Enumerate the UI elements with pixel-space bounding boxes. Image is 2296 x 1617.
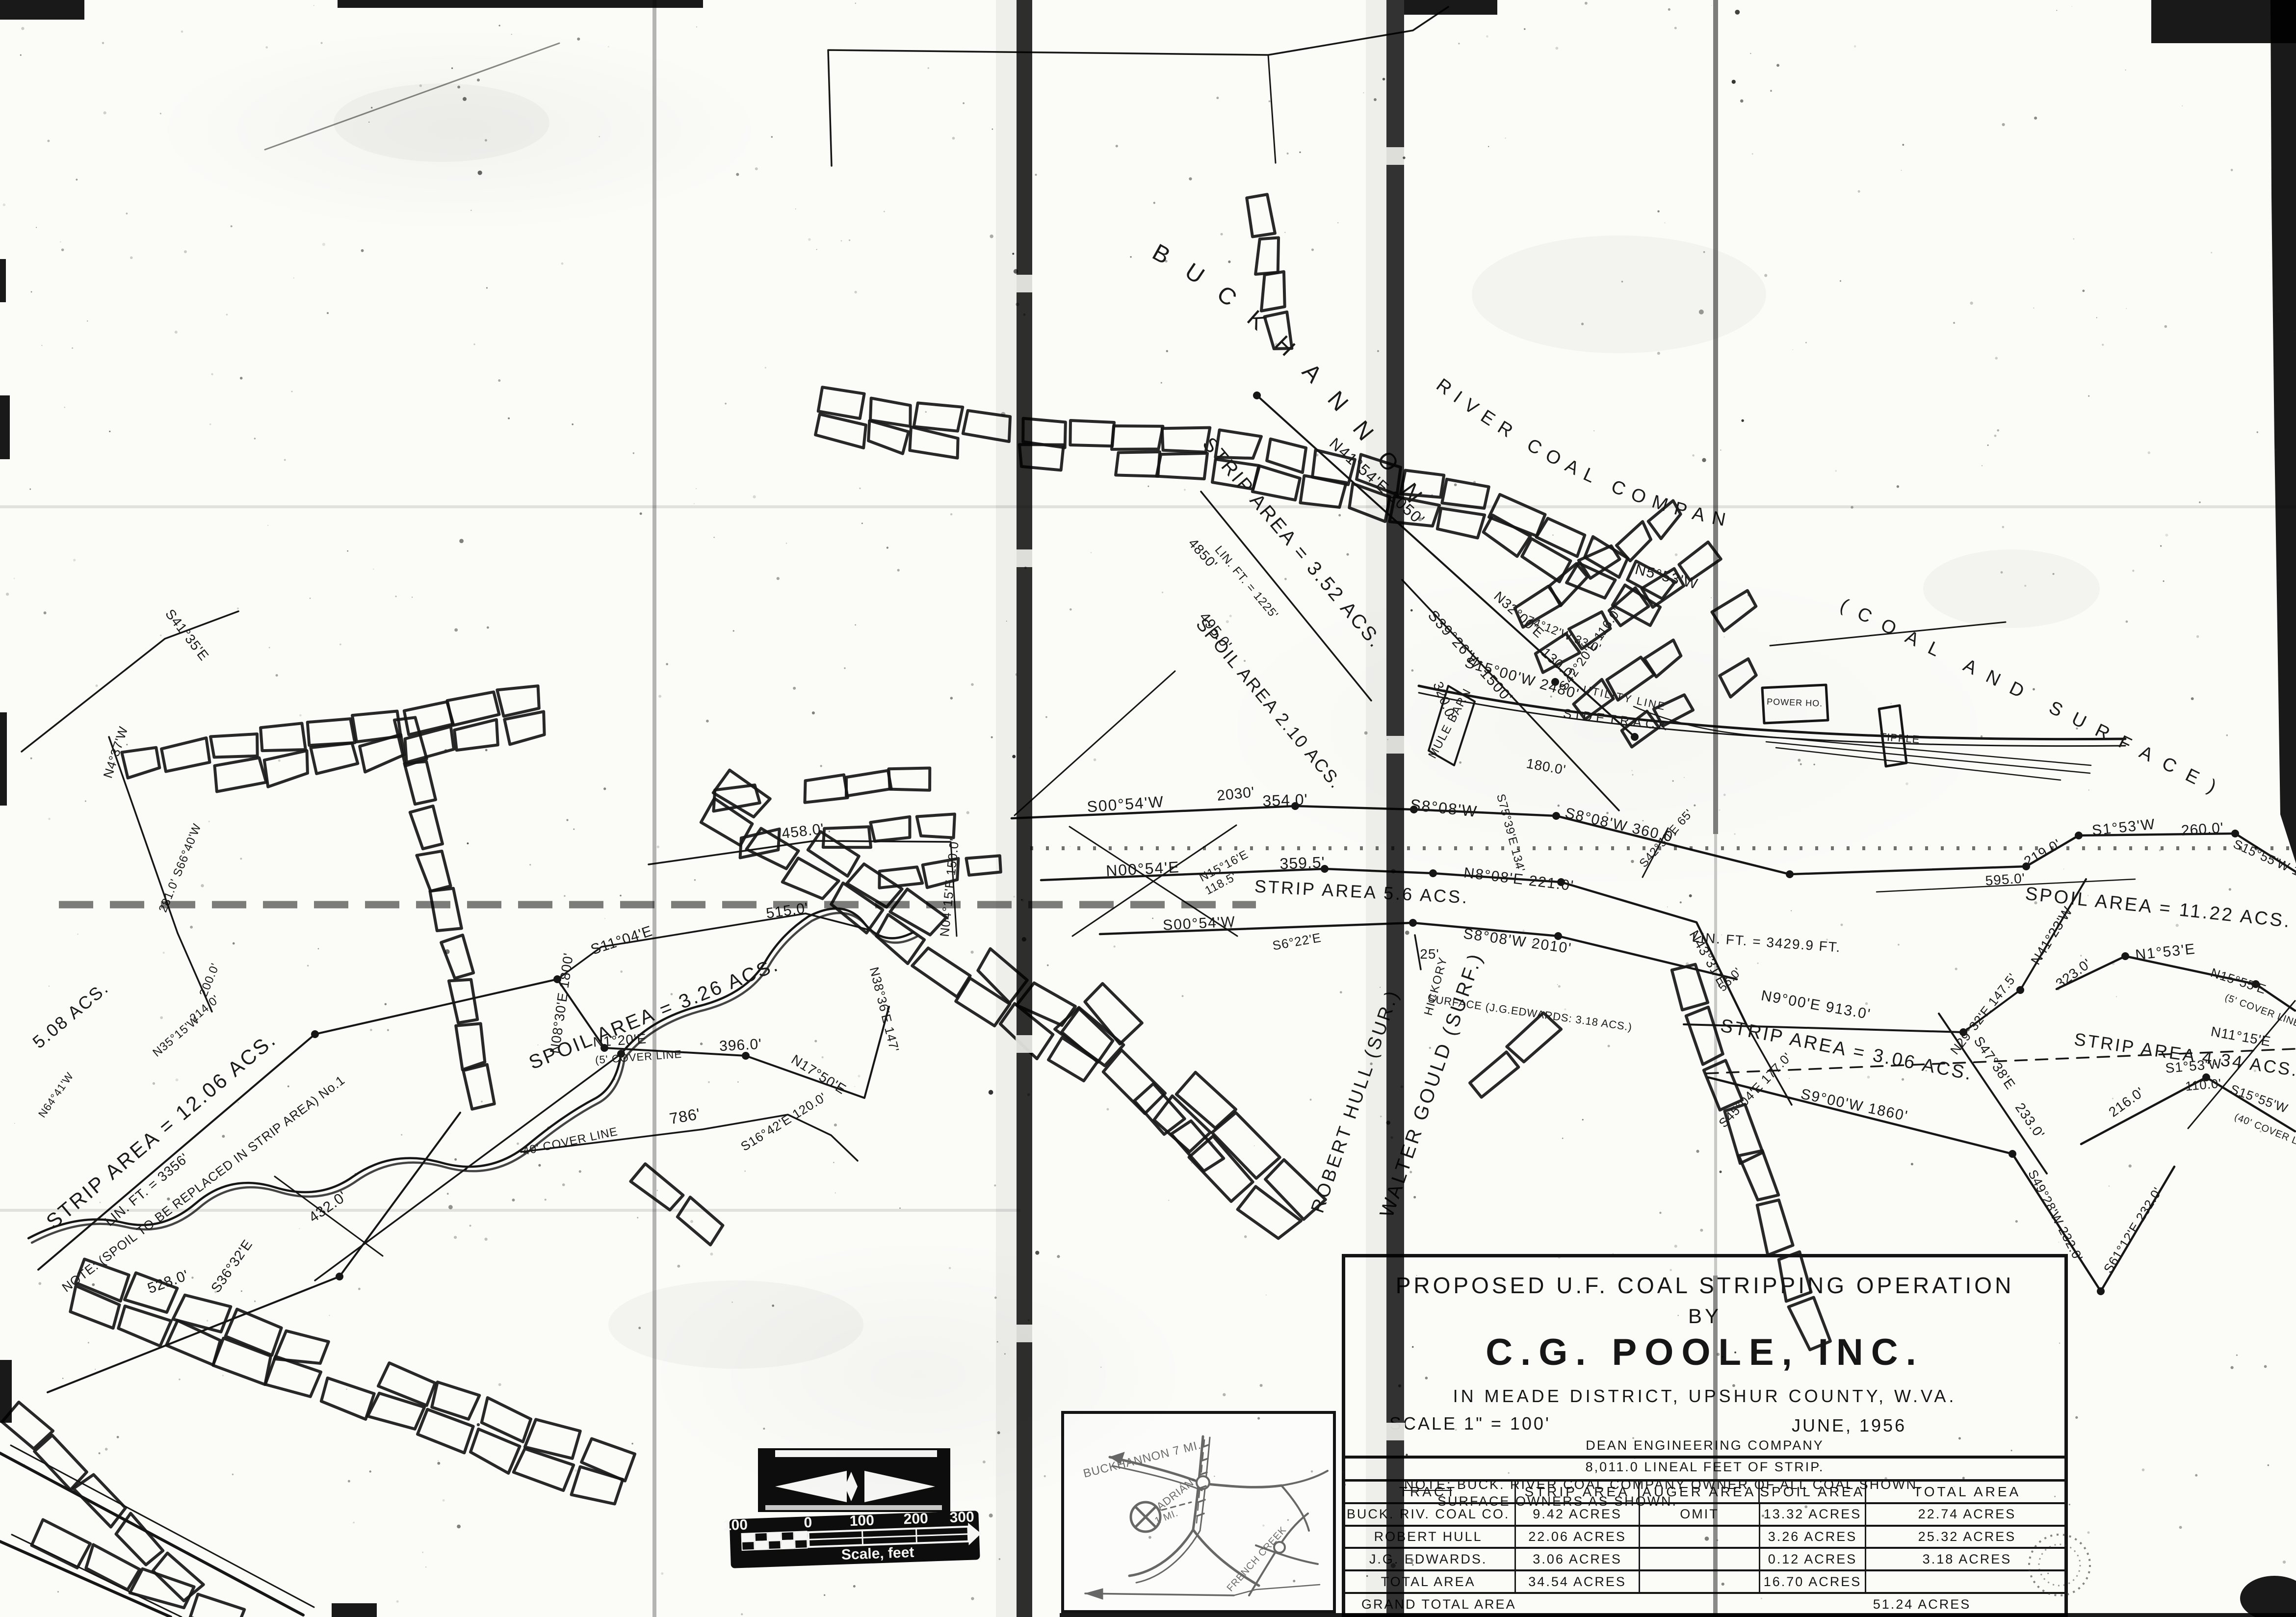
scan-noise: [3, 2, 2295, 1616]
scanned-mine-map-sheet: BUCKHANNONRIVER COAL COMPANY(COAL AND SU…: [0, 0, 2296, 1617]
engineer-seal-stamp: [2029, 1535, 2090, 1595]
fold-creases: [0, 0, 2296, 1617]
edge-artifacts: [0, 0, 2296, 1617]
scan-artifacts: [0, 0, 2296, 1617]
